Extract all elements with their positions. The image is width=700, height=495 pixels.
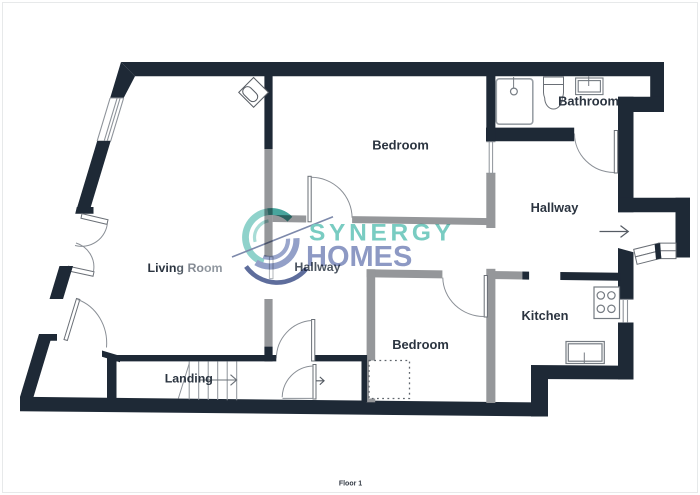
svg-text:Bedroom: Bedroom	[372, 137, 429, 152]
svg-text:Hallway: Hallway	[531, 200, 580, 215]
svg-text:Living Room: Living Room	[148, 261, 223, 275]
svg-text:Bedroom: Bedroom	[392, 337, 449, 352]
svg-text:Bathroom: Bathroom	[558, 94, 619, 109]
svg-text:HOMES: HOMES	[306, 241, 412, 273]
svg-text:Kitchen: Kitchen	[522, 308, 569, 323]
svg-text:Landing: Landing	[165, 371, 213, 385]
svg-text:Floor 1: Floor 1	[339, 480, 362, 487]
